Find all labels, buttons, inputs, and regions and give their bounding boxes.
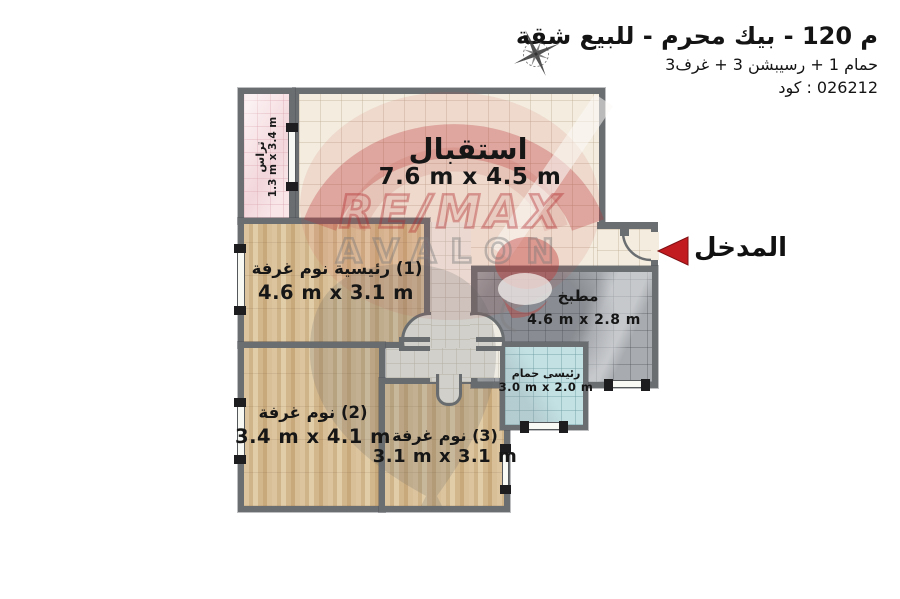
floorplan-canvas: شقة‎ للبيع‎ - محرم‎ بيك‎ - 120 م 3غرف‎ +… — [0, 0, 900, 599]
window-cap — [234, 398, 246, 407]
window-cap — [234, 306, 246, 315]
label-reception-dims: 7.6 m x 4.5 m — [379, 164, 562, 190]
label-bathroom-dims: 3.0 m x 2.0 m — [499, 380, 594, 394]
label-bedroom-1-dims: 4.6 m x 3.1 m — [258, 281, 414, 304]
label-entrance: المدخل — [694, 233, 787, 263]
door-leaf-left — [399, 337, 430, 342]
label-terrace: تراس 1.3 m x 3.4 m — [253, 117, 279, 197]
window-terrace — [288, 131, 296, 183]
window-cap — [604, 379, 613, 391]
entrance-door-gap — [651, 232, 659, 260]
entrance-arrow-icon — [658, 237, 688, 265]
label-terrace-dims: 1.3 m x 3.4 m — [267, 117, 279, 197]
label-reception-name: استقبال — [408, 132, 527, 166]
window-cap — [286, 182, 298, 191]
page-title: شقة‎ للبيع‎ - محرم‎ بيك‎ - 120 م — [516, 22, 878, 50]
label-kitchen-dims: 4.6 m x 2.8 m — [527, 312, 641, 328]
window-cap — [234, 244, 246, 253]
window-cap — [520, 421, 529, 433]
label-kitchen-name: مطبخ — [558, 287, 599, 305]
window-cap — [234, 455, 246, 464]
window-cap — [641, 379, 650, 391]
window-bedroom-1 — [237, 252, 245, 308]
page-subtitle: 3غرف‎ + 3 رسيبشن‎ + 1 حمام — [665, 55, 878, 74]
door-leaf-left-2 — [399, 346, 430, 351]
entrance-vestibule — [597, 222, 658, 272]
label-bathroom-name: حمام‎ رئيسى — [512, 367, 581, 380]
compass-icon — [504, 26, 566, 84]
label-bedroom-2-dims: 3.4 m x 4.1 m — [235, 425, 391, 448]
window-kitchen — [612, 380, 642, 388]
door-bedroom-3 — [436, 374, 462, 406]
window-cap — [286, 123, 298, 132]
label-terrace-name: تراس — [253, 117, 267, 197]
window-bathroom — [528, 422, 560, 430]
window-cap — [500, 485, 511, 494]
label-bedroom-3-name: غرفة‎ نوم‎ (3) — [392, 426, 498, 445]
window-cap — [559, 421, 568, 433]
door-leaf-right-2 — [476, 346, 502, 351]
label-bedroom-2-name: غرفة‎ نوم‎ (2) — [258, 403, 367, 422]
door-leaf-right — [476, 337, 502, 342]
listing-code: كود‎ : 026212 — [778, 78, 878, 97]
label-bedroom-1-name: غرفة‎ نوم‎ رئيسية‎ (1) — [252, 259, 423, 278]
label-bedroom-3-dims: 3.1 m x 3.1 m — [373, 446, 517, 467]
